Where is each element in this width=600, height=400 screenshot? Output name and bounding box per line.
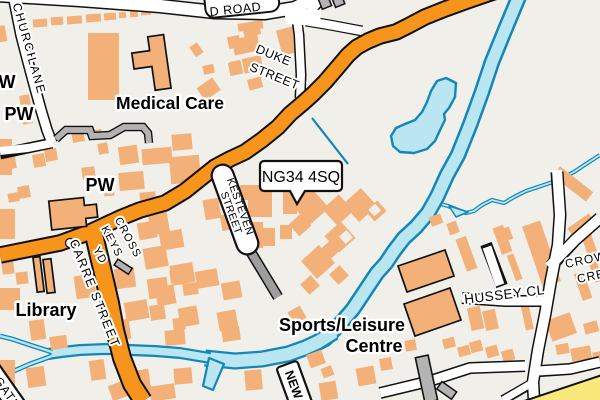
svg-text:PW: PW [5,104,34,124]
svg-text:NG34 4SQ: NG34 4SQ [262,169,340,186]
svg-text:Medical Care: Medical Care [116,93,224,113]
svg-text:Library: Library [15,300,76,320]
svg-text:PW: PW [0,72,16,92]
svg-text:PW: PW [86,175,115,195]
svg-text:Centre: Centre [345,336,402,356]
svg-text:Sports/Leisure: Sports/Leisure [279,315,405,335]
